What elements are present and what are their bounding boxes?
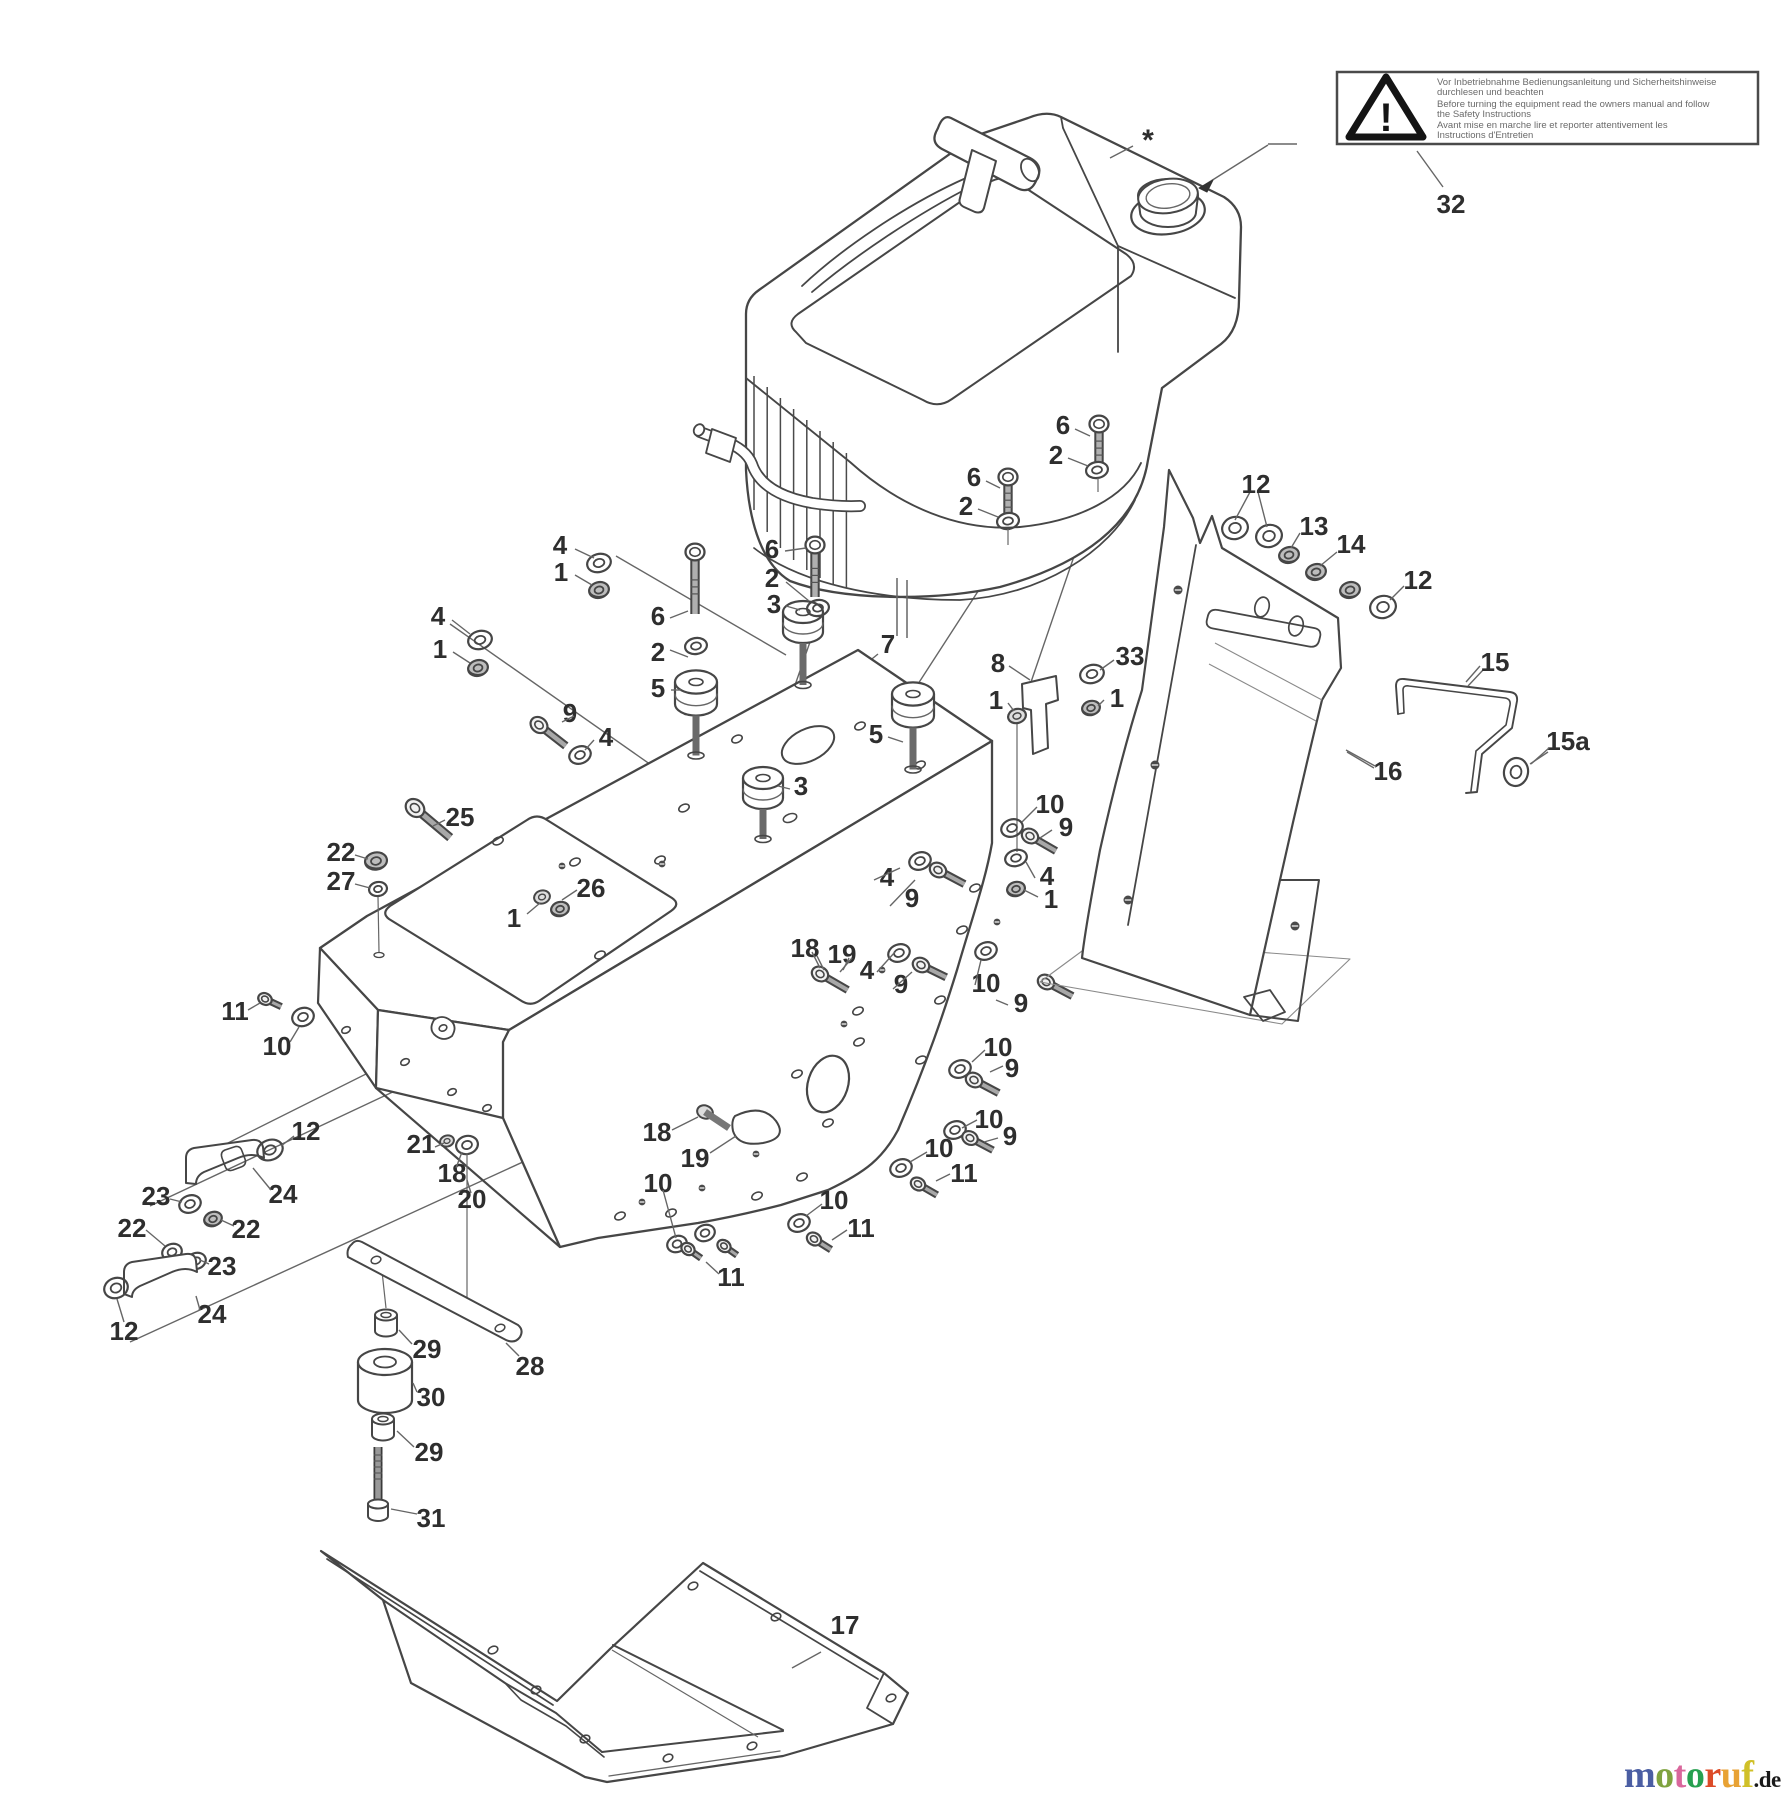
svg-text:31: 31 <box>417 1503 446 1533</box>
svg-text:19: 19 <box>681 1143 710 1173</box>
svg-text:2: 2 <box>1049 440 1063 470</box>
svg-text:29: 29 <box>415 1437 444 1467</box>
svg-text:14: 14 <box>1337 529 1366 559</box>
svg-text:10: 10 <box>820 1185 849 1215</box>
svg-text:24: 24 <box>198 1299 227 1329</box>
svg-text:26: 26 <box>577 873 606 903</box>
svg-text:11: 11 <box>950 1158 978 1188</box>
svg-text:1: 1 <box>507 903 521 933</box>
svg-text:4: 4 <box>431 601 446 631</box>
svg-text:16: 16 <box>1374 756 1403 786</box>
svg-text:29: 29 <box>413 1334 442 1364</box>
svg-text:9: 9 <box>1003 1121 1017 1151</box>
svg-text:28: 28 <box>516 1351 545 1381</box>
svg-text:6: 6 <box>967 462 981 492</box>
svg-text:4: 4 <box>553 530 568 560</box>
svg-text:9: 9 <box>563 698 577 728</box>
svg-text:9: 9 <box>1014 988 1028 1018</box>
svg-text:19: 19 <box>828 939 857 969</box>
svg-text:22: 22 <box>327 837 356 867</box>
svg-text:12: 12 <box>1404 565 1433 595</box>
svg-text:24: 24 <box>269 1179 298 1209</box>
svg-text:21: 21 <box>407 1129 436 1159</box>
svg-text:1: 1 <box>989 685 1003 715</box>
svg-text:6: 6 <box>651 601 665 631</box>
svg-text:2: 2 <box>651 637 665 667</box>
svg-text:25: 25 <box>446 802 475 832</box>
svg-text:15: 15 <box>1481 647 1510 677</box>
svg-text:11: 11 <box>221 996 249 1026</box>
svg-text:22: 22 <box>118 1213 147 1243</box>
svg-text:4: 4 <box>860 955 875 985</box>
svg-text:18: 18 <box>643 1117 672 1147</box>
svg-text:Instructions d'Entretien: Instructions d'Entretien <box>1437 130 1533 141</box>
svg-text:23: 23 <box>142 1181 171 1211</box>
svg-text:11: 11 <box>847 1213 875 1243</box>
svg-text:22: 22 <box>232 1214 261 1244</box>
svg-text:10: 10 <box>975 1104 1004 1134</box>
svg-text:7: 7 <box>881 629 895 659</box>
svg-text:1: 1 <box>554 557 568 587</box>
svg-text:12: 12 <box>292 1116 321 1146</box>
svg-text:15a: 15a <box>1546 726 1590 756</box>
svg-text:13: 13 <box>1300 511 1329 541</box>
svg-text:2: 2 <box>959 491 973 521</box>
svg-text:*: * <box>1142 124 1154 157</box>
svg-text:5: 5 <box>869 719 883 749</box>
svg-text:33: 33 <box>1116 641 1145 671</box>
svg-text:3: 3 <box>794 771 808 801</box>
svg-text:1: 1 <box>1044 884 1058 914</box>
svg-text:12: 12 <box>1242 469 1271 499</box>
svg-text:23: 23 <box>208 1251 237 1281</box>
svg-text:the Safety Instructions: the Safety Instructions <box>1437 109 1531 120</box>
svg-text:10: 10 <box>644 1168 673 1198</box>
svg-text:30: 30 <box>417 1382 446 1412</box>
svg-text:9: 9 <box>1059 812 1073 842</box>
svg-text:5: 5 <box>651 673 665 703</box>
svg-text:1: 1 <box>433 634 447 664</box>
svg-text:9: 9 <box>894 969 908 999</box>
svg-text:10: 10 <box>925 1133 954 1163</box>
svg-text:1: 1 <box>1110 683 1124 713</box>
svg-text:27: 27 <box>327 866 356 896</box>
svg-text:durchlesen und beachten: durchlesen und beachten <box>1437 87 1544 98</box>
svg-text:8: 8 <box>991 648 1005 678</box>
svg-text:3: 3 <box>767 589 781 619</box>
svg-text:4: 4 <box>599 722 614 752</box>
svg-text:6: 6 <box>1056 410 1070 440</box>
svg-text:6: 6 <box>765 534 779 564</box>
svg-text:9: 9 <box>1005 1053 1019 1083</box>
svg-text:11: 11 <box>717 1262 745 1292</box>
svg-text:20: 20 <box>458 1184 487 1214</box>
svg-text:10: 10 <box>263 1031 292 1061</box>
svg-text:32: 32 <box>1437 189 1466 219</box>
svg-text:17: 17 <box>831 1610 860 1640</box>
svg-text:!: ! <box>1379 96 1392 140</box>
